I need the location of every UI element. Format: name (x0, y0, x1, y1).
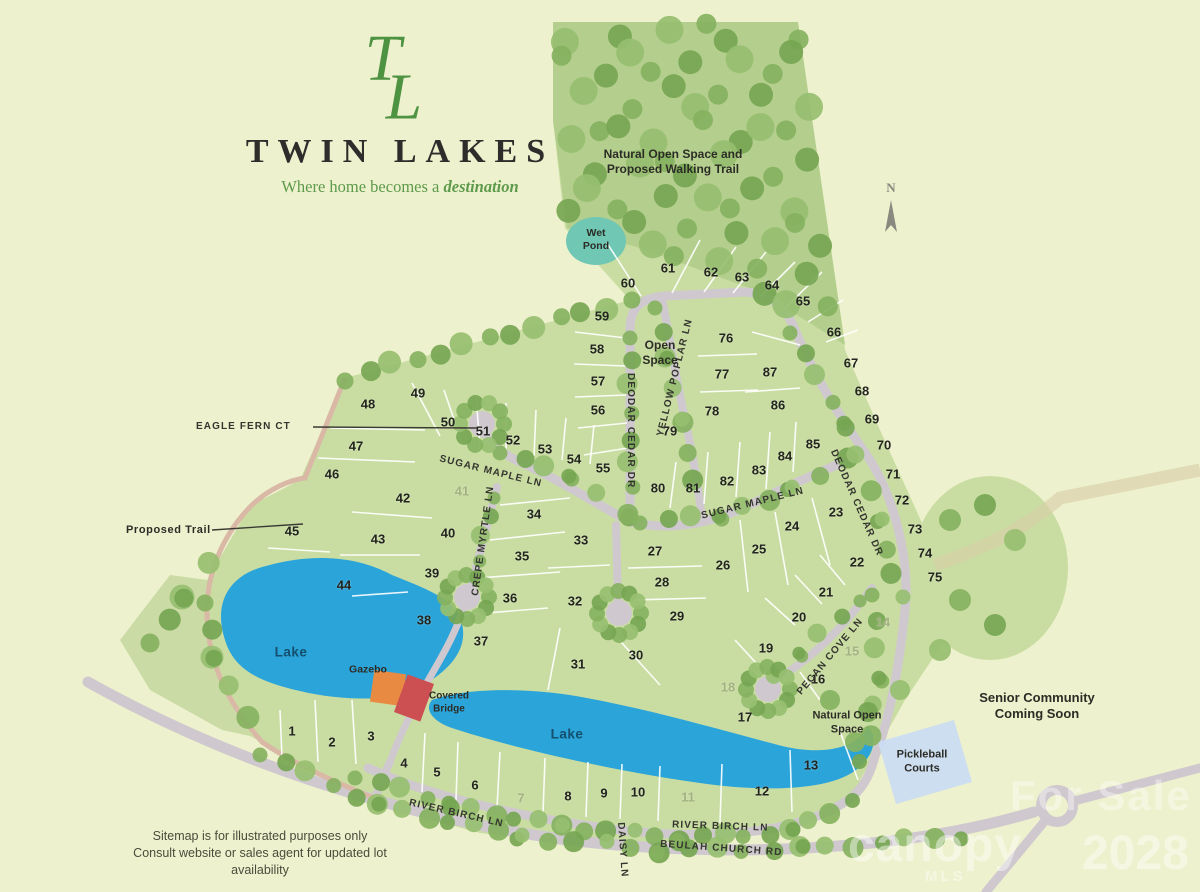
lot-number: 15 (845, 644, 859, 659)
lot-number: 10 (631, 785, 645, 800)
lot-number: 5 (433, 765, 440, 780)
lot-number: 43 (371, 532, 385, 547)
sitemap-page: T L TWIN LAKES Where home becomes a dest… (0, 0, 1200, 892)
lot-number: 26 (716, 558, 730, 573)
lot-number: 87 (763, 365, 777, 380)
lot-number: 45 (285, 524, 299, 539)
lot-number: 58 (590, 342, 604, 357)
lot-number: 84 (778, 449, 792, 464)
lot-number: 4 (400, 756, 407, 771)
lot-number: 20 (792, 610, 806, 625)
svg-text:L: L (385, 61, 422, 126)
lot-number: 49 (411, 386, 425, 401)
street-label-deodar-west: DEODAR CEDAR DR (625, 373, 636, 488)
lot-number: 66 (827, 325, 841, 340)
lot-number: 64 (765, 278, 779, 293)
twin-lakes-monogram-logo: T L (357, 30, 443, 126)
footer-line-2: Consult website or sales agent for updat… (110, 845, 410, 879)
lot-number: 46 (325, 467, 339, 482)
lot-number: 78 (705, 404, 719, 419)
lot-number: 52 (506, 433, 520, 448)
lot-number: 12 (755, 784, 769, 799)
gazebo-label: Gazebo (349, 663, 387, 676)
lot-number: 57 (591, 374, 605, 389)
lot-number: 85 (806, 437, 820, 452)
lot-number: 76 (719, 331, 733, 346)
north-indicator: N (876, 180, 906, 196)
lot-number: 24 (785, 519, 799, 534)
lot-number: 82 (720, 474, 734, 489)
brand-block: T L TWIN LAKES Where home becomes a dest… (240, 30, 560, 197)
lot-number: 8 (564, 789, 571, 804)
lot-number: 32 (568, 594, 582, 609)
brand-title: TWIN LAKES (240, 133, 560, 171)
proposed-trail-label: Proposed Trail (126, 524, 211, 536)
lot-number: 61 (661, 261, 675, 276)
lot-number: 41 (455, 484, 469, 499)
lot-number: 37 (474, 634, 488, 649)
lot-number: 23 (829, 505, 843, 520)
lot-number: 67 (844, 356, 858, 371)
lot-number: 21 (819, 585, 833, 600)
lot-number: 9 (600, 786, 607, 801)
lot-number: 44 (337, 578, 351, 593)
lot-number: 77 (715, 367, 729, 382)
lot-number: 22 (850, 555, 864, 570)
street-label-eagle-fern: EAGLE FERN CT (196, 421, 291, 432)
lot-number: 53 (538, 442, 552, 457)
lot-number: 83 (752, 463, 766, 478)
lot-number: 31 (571, 657, 585, 672)
lot-number: 59 (595, 309, 609, 324)
lot-number: 39 (425, 566, 439, 581)
lake-west-label: Lake (275, 645, 308, 662)
lot-number: 75 (928, 570, 942, 585)
footer-disclaimer: Sitemap is for illustrated purposes only… (110, 828, 410, 879)
lot-number: 72 (895, 493, 909, 508)
lot-number: 71 (886, 467, 900, 482)
lot-number: 62 (704, 265, 718, 280)
lot-number: 14 (876, 615, 890, 630)
lot-number: 30 (629, 648, 643, 663)
wet-pond-label: Wet Pond (576, 227, 616, 253)
lake-east-label: Lake (551, 727, 584, 744)
open-space-label: Open Space (635, 338, 685, 368)
lot-number: 6 (471, 778, 478, 793)
lot-number: 68 (855, 384, 869, 399)
watermark-canopy: canopy (848, 818, 1022, 873)
lot-number: 3 (367, 729, 374, 744)
lot-number: 11 (681, 790, 695, 805)
lot-number: 81 (686, 481, 700, 496)
lot-number: 70 (877, 438, 891, 453)
lot-number: 69 (865, 412, 879, 427)
lot-number: 74 (918, 546, 932, 561)
natural-open-space-trail-label: Natural Open Space and Proposed Walking … (591, 147, 756, 177)
brand-tagline: Where home becomes a destination (240, 177, 560, 197)
lot-number: 65 (796, 294, 810, 309)
lot-number: 1 (288, 724, 295, 739)
lot-number: 55 (596, 461, 610, 476)
lot-number: 63 (735, 270, 749, 285)
lot-number: 17 (738, 710, 752, 725)
lot-number: 50 (441, 415, 455, 430)
lot-number: 60 (621, 276, 635, 291)
covered-bridge-label: Covered Bridge (421, 691, 477, 716)
footer-line-1: Sitemap is for illustrated purposes only (110, 828, 410, 845)
lot-number: 34 (527, 507, 541, 522)
senior-community-label: Senior Community Coming Soon (972, 690, 1102, 723)
lot-number: 86 (771, 398, 785, 413)
natural-open-space-label: Natural Open Space (800, 709, 895, 737)
lot-number: 80 (651, 481, 665, 496)
lot-number: 27 (648, 544, 662, 559)
lot-number: 29 (670, 609, 684, 624)
lot-number: 42 (396, 491, 410, 506)
lot-number: 28 (655, 575, 669, 590)
lot-number: 7 (517, 791, 524, 806)
lot-number: 35 (515, 549, 529, 564)
watermark-mls: MLS (925, 868, 966, 885)
lot-number: 33 (574, 533, 588, 548)
sitemap-graphic (0, 0, 1200, 892)
lot-number: 40 (441, 526, 455, 541)
lot-number: 18 (721, 680, 735, 695)
lot-number: 56 (591, 403, 605, 418)
lot-number: 48 (361, 397, 375, 412)
lot-number: 73 (908, 522, 922, 537)
lot-number: 13 (804, 758, 818, 773)
lot-number: 36 (503, 591, 517, 606)
watermark-year: 2028 (1082, 826, 1189, 881)
lot-number: 25 (752, 542, 766, 557)
lot-number: 38 (417, 613, 431, 628)
lot-number: 51 (476, 424, 490, 439)
lot-number: 19 (759, 641, 773, 656)
lot-number: 54 (567, 452, 581, 467)
lot-number: 47 (349, 439, 363, 454)
pickleball-courts-label: Pickleball Courts (882, 748, 962, 776)
watermark-for-sale: For Sale (1010, 772, 1192, 820)
lot-number: 2 (328, 735, 335, 750)
